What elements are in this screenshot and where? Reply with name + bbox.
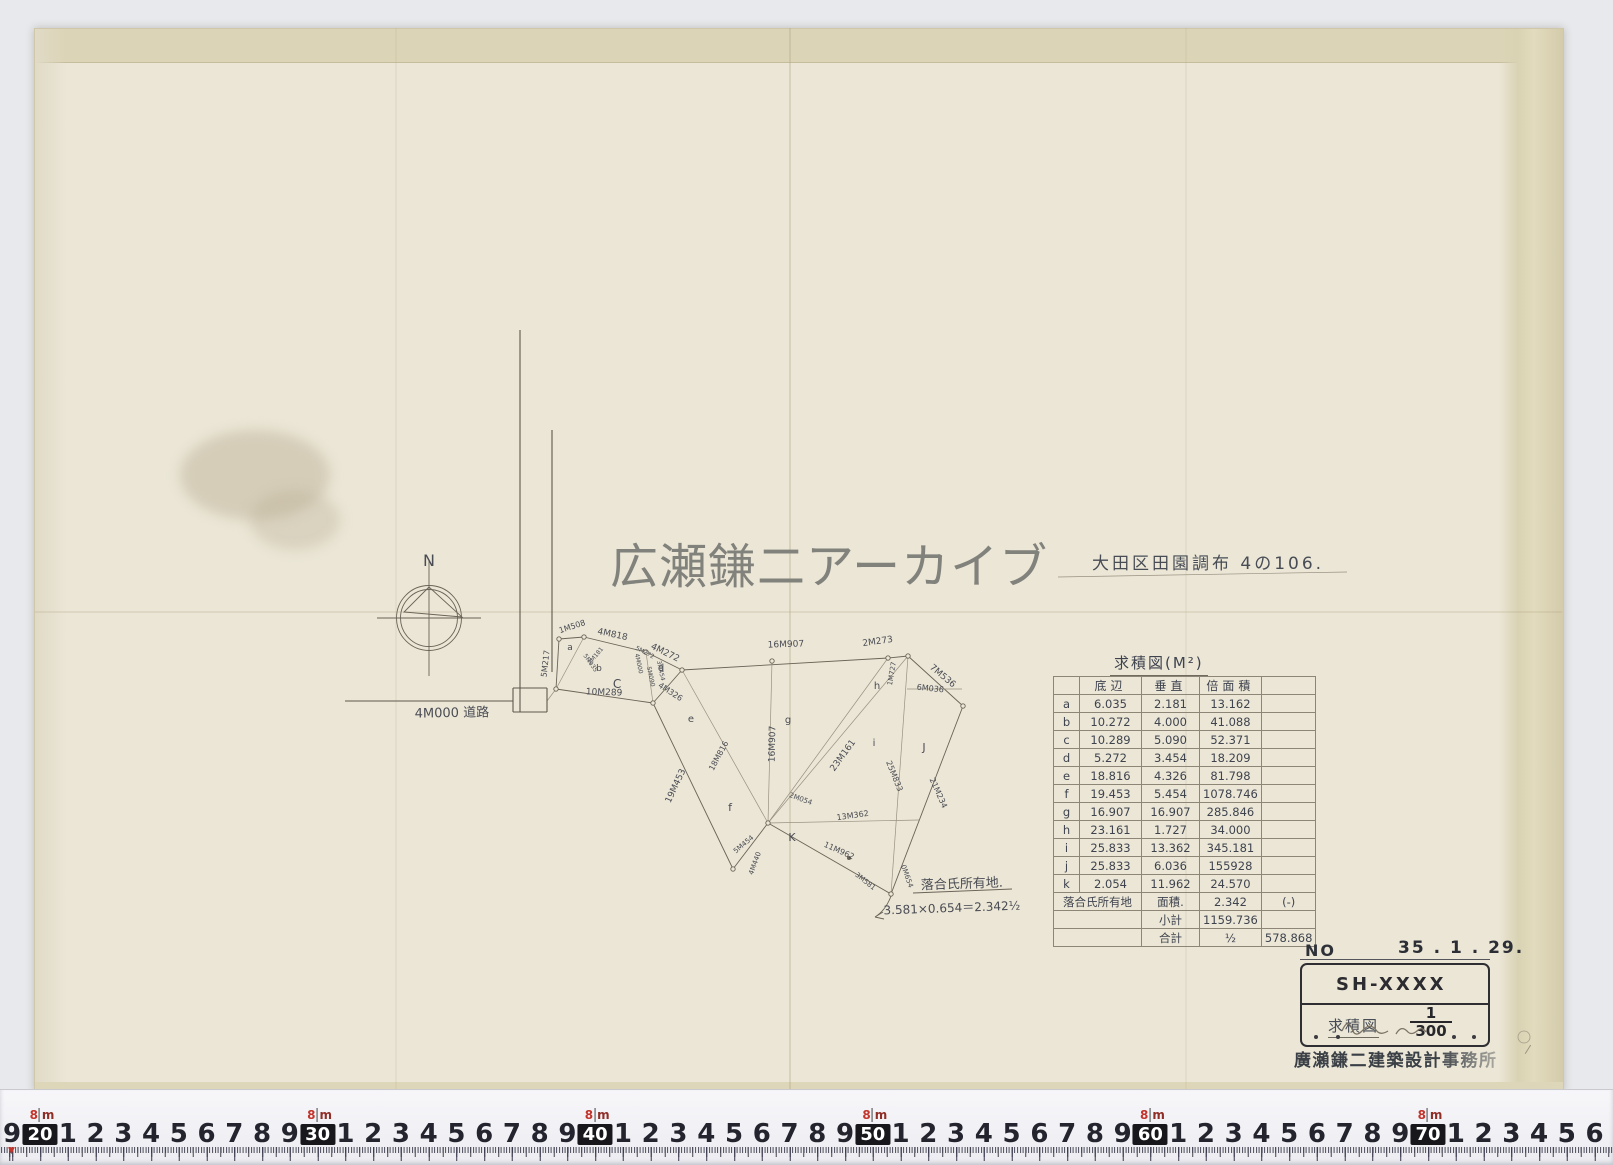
measurement-label: 4M440 <box>747 851 763 876</box>
ruler-number: 1 <box>1169 1121 1187 1147</box>
table-cell: 5.272 <box>1080 749 1142 767</box>
ruler-number: 5 <box>1280 1121 1298 1147</box>
table-cell: 2.342 <box>1200 893 1262 911</box>
table-cell: 4.326 <box>1142 767 1200 785</box>
ruler-number: 5 <box>1558 1121 1576 1147</box>
compass-needle <box>404 587 462 617</box>
scanned-drawing-page: N4M000 道路1M5085M2174M8184M27216M9072M273… <box>0 0 1613 1165</box>
area-table-title: 求積図(M²) <box>1110 652 1208 676</box>
measurement-label: C <box>613 677 621 691</box>
measurement-label: 3.581×0.654＝2.342½ <box>883 899 1020 918</box>
ruler-number: 7 <box>503 1121 521 1147</box>
table-cell: g <box>1054 803 1080 821</box>
measurement-label: a <box>567 643 573 653</box>
table-cell: k <box>1054 875 1080 893</box>
table-cell: 1078.746 <box>1200 785 1262 803</box>
table-row: c10.2895.09052.371 <box>1054 731 1316 749</box>
measurement-label: 4M000 道路 <box>415 704 490 721</box>
table-cell: 10.289 <box>1080 731 1142 749</box>
table-cell: b <box>1054 713 1080 731</box>
measurement-label: 16M907 <box>768 726 779 763</box>
table-cell: i <box>1054 839 1080 857</box>
table-cell: c <box>1054 731 1080 749</box>
measurement-label: d <box>658 663 664 674</box>
measurement-label: i <box>873 738 876 749</box>
ruler-number: 9 <box>836 1121 854 1147</box>
table-cell <box>1261 713 1316 731</box>
survey-vertex <box>582 635 586 639</box>
survey-vertex <box>889 892 893 896</box>
table-cell: h <box>1054 821 1080 839</box>
table-cell: 25.833 <box>1080 839 1142 857</box>
measurement-label: g <box>785 715 791 726</box>
ruler-number: 2 <box>919 1121 937 1147</box>
company-stamp: 廣瀨鎌二建築設計事務所 <box>1294 1046 1498 1071</box>
measurement-label: 6M036 <box>916 683 944 695</box>
table-cell: 5.454 <box>1142 785 1200 803</box>
table-cell <box>1261 821 1316 839</box>
table-cell: 52.371 <box>1200 731 1262 749</box>
measurement-label: 5M217 <box>539 650 551 678</box>
survey-vertex <box>731 867 735 871</box>
measurement-label: h <box>874 681 880 692</box>
ruler-number: 9 <box>558 1121 576 1147</box>
ruler-number: 8 <box>531 1121 549 1147</box>
table-header-cell <box>1054 677 1080 695</box>
table-row: d5.2723.45418.209 <box>1054 749 1316 767</box>
ruler-number: 6 <box>753 1121 771 1147</box>
table-cell: 4.000 <box>1142 713 1200 731</box>
table-cell: 285.846 <box>1200 803 1262 821</box>
ruler-decade-number: 60 <box>1133 1124 1168 1145</box>
table-row: h23.1611.72734.000 <box>1054 821 1316 839</box>
site-address-title: 大田区田園調布 4の106. <box>1092 549 1324 574</box>
table-cell: 13.162 <box>1200 695 1262 713</box>
table-row: 底辺垂直倍面積 <box>1054 677 1316 695</box>
ruler-number: 4 <box>697 1121 715 1147</box>
table-cell <box>1261 731 1316 749</box>
ruler-number: 7 <box>1336 1121 1354 1147</box>
table-cell: j <box>1054 857 1080 875</box>
ruler-number: 3 <box>114 1121 132 1147</box>
ruler-unit-label: 8m <box>862 1109 887 1121</box>
ruler-number: 8 <box>253 1121 271 1147</box>
measurement-label: 13M362 <box>836 809 869 822</box>
title-block-rule <box>1300 959 1490 960</box>
table-row: k2.05411.96224.570 <box>1054 875 1316 893</box>
table-cell <box>1261 749 1316 767</box>
table-cell: ½ <box>1200 929 1262 947</box>
table-header-cell: 垂直 <box>1142 677 1200 695</box>
ruler-unit-label: 8m <box>1418 1109 1443 1121</box>
table-cell <box>1261 767 1316 785</box>
table-cell: 5.090 <box>1142 731 1200 749</box>
table-cell: 16.907 <box>1080 803 1142 821</box>
ruler-number: 4 <box>142 1121 160 1147</box>
survey-vertex <box>906 654 910 658</box>
ruler-unit-label: 8m <box>585 1109 610 1121</box>
measurement-label: K <box>788 831 796 844</box>
measurement-label: 0M654 <box>899 864 915 890</box>
survey-vertex <box>557 637 561 641</box>
table-cell <box>1261 803 1316 821</box>
table-cell: 13.362 <box>1142 839 1200 857</box>
table-cell: 24.570 <box>1200 875 1262 893</box>
measurement-label: 1M508 <box>558 618 587 635</box>
measurement-label: 1M727 <box>886 661 898 686</box>
table-cell: (-) <box>1261 893 1316 911</box>
survey-vertex <box>766 821 770 825</box>
survey-vertex <box>886 656 890 660</box>
table-cell: 23.161 <box>1080 821 1142 839</box>
ruler-number: 1 <box>336 1121 354 1147</box>
table-header-cell <box>1261 677 1316 695</box>
table-row: 合計½578.868 <box>1054 929 1316 947</box>
table-header-cell: 底辺 <box>1080 677 1142 695</box>
ruler-number: 6 <box>1308 1121 1326 1147</box>
survey-vertex <box>554 687 558 691</box>
ruler-decade-number: 20 <box>22 1124 57 1145</box>
ruler-unit-label: 8m <box>30 1109 55 1121</box>
ruler-number: 9 <box>1391 1121 1409 1147</box>
survey-vertex <box>770 659 774 663</box>
table-cell: 3.454 <box>1142 749 1200 767</box>
measurement-label: f <box>728 801 733 814</box>
ruler-number: 4 <box>1252 1121 1270 1147</box>
measurement-label: b <box>596 664 602 674</box>
table-cell <box>1054 911 1142 929</box>
table-cell: 落合氏所有地 <box>1054 893 1142 911</box>
ruler-decade-number: 50 <box>855 1124 890 1145</box>
table-row: f19.4535.4541078.746 <box>1054 785 1316 803</box>
measurement-label: e <box>688 714 694 725</box>
ruler-number: 9 <box>281 1121 299 1147</box>
measurement-label: 3M581 <box>853 871 877 892</box>
measurement-label: 4M000 <box>633 653 644 675</box>
ruler-number: 1 <box>1447 1121 1465 1147</box>
pencil-line <box>556 639 559 689</box>
table-cell: 1159.736 <box>1200 911 1262 929</box>
table-cell: 面積. <box>1142 893 1200 911</box>
table-cell: 10.272 <box>1080 713 1142 731</box>
pencil-line <box>888 656 908 658</box>
measurement-label: 25M833 <box>884 759 904 792</box>
measurement-label: 2M054 <box>788 791 814 807</box>
ruler-number: 5 <box>170 1121 188 1147</box>
ruler-number: 7 <box>1058 1121 1076 1147</box>
measurement-label: 11M962 <box>822 840 855 861</box>
table-header-cell: 倍面積 <box>1200 677 1262 695</box>
signature-stroke <box>1342 1023 1426 1034</box>
pencil-line <box>559 637 584 639</box>
ruler-number: 2 <box>642 1121 660 1147</box>
table-cell: 345.181 <box>1200 839 1262 857</box>
measurement-label: 23M161 <box>829 738 858 773</box>
ruler-number: 8 <box>808 1121 826 1147</box>
survey-vertex <box>651 701 655 705</box>
drawing-number-label: NO <box>1305 941 1336 960</box>
ruler-number: 9 <box>1114 1121 1132 1147</box>
table-cell: 16.907 <box>1142 803 1200 821</box>
ruler-number: 5 <box>447 1121 465 1147</box>
measurement-label: / <box>1524 1042 1532 1057</box>
ruler-number: 2 <box>1197 1121 1215 1147</box>
measurement-label: 2M273 <box>862 635 894 649</box>
stamp-dot <box>1472 1035 1476 1039</box>
table-cell <box>1261 875 1316 893</box>
table-cell <box>1261 695 1316 713</box>
stamp-dot <box>1336 1035 1340 1039</box>
table-cell: 1.727 <box>1142 821 1200 839</box>
ruler-number: 9 <box>3 1121 21 1147</box>
ruler-number: 6 <box>198 1121 216 1147</box>
ruler-number: 7 <box>225 1121 243 1147</box>
table-cell: 81.798 <box>1200 767 1262 785</box>
table-cell: 11.962 <box>1142 875 1200 893</box>
ruler-number: 1 <box>614 1121 632 1147</box>
ruler-unit-label: 8m <box>307 1109 332 1121</box>
table-cell <box>1261 785 1316 803</box>
ruler-number: 3 <box>947 1121 965 1147</box>
pencil-line <box>768 658 888 823</box>
table-cell: 41.088 <box>1200 713 1262 731</box>
table-cell: 34.000 <box>1200 821 1262 839</box>
ruler-number: 2 <box>364 1121 382 1147</box>
table-cell <box>1261 911 1316 929</box>
stamp-dot <box>1452 1035 1456 1039</box>
table-cell: f <box>1054 785 1080 803</box>
table-cell: 6.036 <box>1142 857 1200 875</box>
measurement-label: J <box>921 741 925 754</box>
survey-vertex <box>680 668 684 672</box>
ruler-number: 3 <box>1225 1121 1243 1147</box>
measurement-label: 5M090 <box>645 666 656 688</box>
table-cell: 25.833 <box>1080 857 1142 875</box>
signature-svg <box>1302 965 1484 1041</box>
measurement-label: 4M326 <box>656 681 684 703</box>
ruler-decade-number: 40 <box>578 1124 613 1145</box>
table-row: e18.8164.32681.798 <box>1054 767 1316 785</box>
measurement-label: N <box>423 551 435 570</box>
table-row: b10.2724.00041.088 <box>1054 713 1316 731</box>
table-cell: d <box>1054 749 1080 767</box>
table-cell <box>1261 857 1316 875</box>
table-row: g16.90716.907285.846 <box>1054 803 1316 821</box>
ruler-number: 3 <box>392 1121 410 1147</box>
ruler-number: 4 <box>420 1121 438 1147</box>
measurement-label: 18M816 <box>707 739 730 772</box>
ruler-ticks-cm <box>0 1147 1613 1161</box>
table-cell: 2.054 <box>1080 875 1142 893</box>
pencil-line <box>653 703 733 869</box>
table-cell: 18.816 <box>1080 767 1142 785</box>
ruler-number: 6 <box>1586 1121 1604 1147</box>
table-cell: a <box>1054 695 1080 713</box>
table-row: 落合氏所有地面積.2.342(-) <box>1054 893 1316 911</box>
pencil-line <box>682 658 888 670</box>
ruler-number: 2 <box>1474 1121 1492 1147</box>
ruler-decade-number: 70 <box>1410 1124 1445 1145</box>
ruler-number: 5 <box>725 1121 743 1147</box>
table-cell: 18.209 <box>1200 749 1262 767</box>
ruler-number: 8 <box>1363 1121 1381 1147</box>
area-calculation-table: 底辺垂直倍面積a6.0352.18113.162b10.2724.00041.0… <box>1053 676 1316 947</box>
ruler-number: 6 <box>1030 1121 1048 1147</box>
table-row: 小計1159.736 <box>1054 911 1316 929</box>
table-row: a6.0352.18113.162 <box>1054 695 1316 713</box>
table-cell: 小計 <box>1142 911 1200 929</box>
table-cell: 155928 <box>1200 857 1262 875</box>
ruler-number: 7 <box>780 1121 798 1147</box>
table-cell: e <box>1054 767 1080 785</box>
ruler-number: 8 <box>1086 1121 1104 1147</box>
stamp-dot <box>1314 1035 1318 1039</box>
measurement-label: 21M234 <box>928 776 949 809</box>
ruler-number: 3 <box>1502 1121 1520 1147</box>
ruler-number: 1 <box>59 1121 77 1147</box>
date-label: 35 . 1 . 29. <box>1398 938 1524 958</box>
ruler-number: 5 <box>1003 1121 1021 1147</box>
ruler-unit-label: 8m <box>1140 1109 1165 1121</box>
table-row: j25.8336.036155928 <box>1054 857 1316 875</box>
ruler-number: 6 <box>475 1121 493 1147</box>
ruler-number: 3 <box>669 1121 687 1147</box>
ruler-number: 4 <box>975 1121 993 1147</box>
ruler-number: 4 <box>1530 1121 1548 1147</box>
archive-watermark: 広瀬鎌二アーカイブ <box>610 527 1048 597</box>
ruler-number: 1 <box>892 1121 910 1147</box>
table-cell: 19.453 <box>1080 785 1142 803</box>
table-cell <box>1261 839 1316 857</box>
table-row: i25.83313.362345.181 <box>1054 839 1316 857</box>
table-cell: 6.035 <box>1080 695 1142 713</box>
survey-vertex <box>961 704 965 708</box>
table-cell: 合計 <box>1142 929 1200 947</box>
measurement-label: 16M907 <box>768 639 805 650</box>
measurement-label: 落合氏所有地. <box>921 876 1004 894</box>
measurement-label: 19M453 <box>664 768 688 805</box>
table-cell: 2.181 <box>1142 695 1200 713</box>
ruler-number: 2 <box>86 1121 104 1147</box>
title-block-stamp: SH-XXXX 求積図 1 300 <box>1300 963 1490 1047</box>
ruler-decade-number: 30 <box>300 1124 335 1145</box>
table-cell <box>1054 929 1142 947</box>
